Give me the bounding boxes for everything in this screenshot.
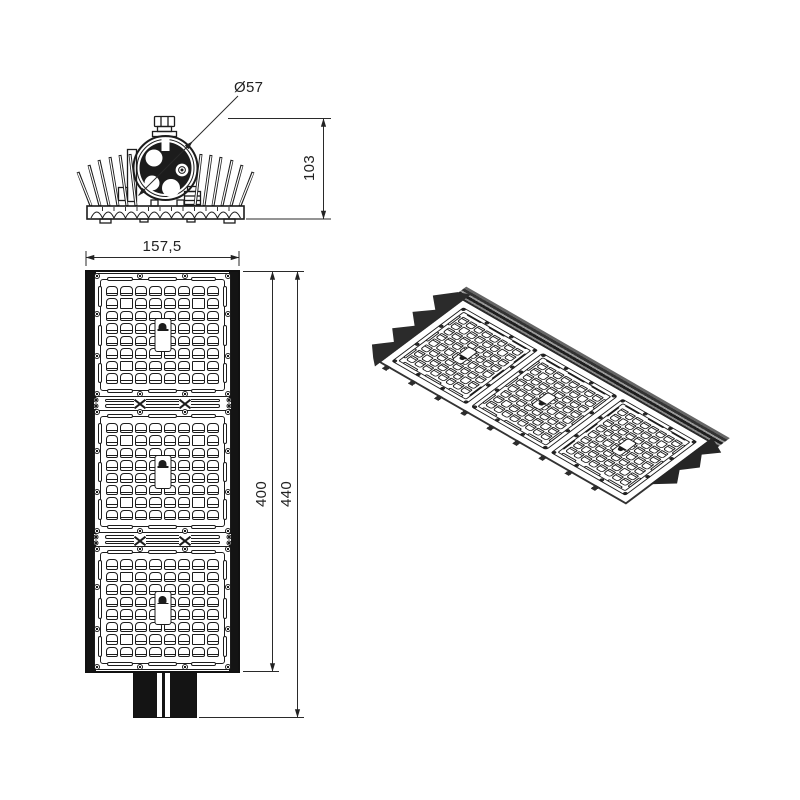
frame-slot	[107, 414, 133, 418]
screw-head-icon	[519, 432, 526, 436]
led-lens-cell	[207, 298, 219, 308]
led-lens-cell	[149, 298, 161, 308]
led-lens-cell	[164, 361, 176, 371]
strip-slot	[105, 535, 220, 538]
led-lens-cell	[178, 572, 190, 582]
led-lens-cell	[106, 622, 118, 632]
led-lens-cell	[135, 584, 147, 594]
screw-head-icon	[137, 528, 143, 534]
frame-slot	[223, 560, 227, 581]
mount-pad-cell	[120, 361, 132, 371]
led-lens-cell	[178, 348, 190, 358]
screw-head-icon	[137, 664, 143, 670]
dim-body-length: 400	[253, 472, 269, 516]
screw-head-icon	[440, 386, 447, 390]
module-connector-strip	[94, 398, 231, 409]
led-lens-cell	[164, 634, 176, 644]
module-connector-strip	[94, 534, 231, 545]
led-lens-cell	[135, 497, 147, 507]
hot-surface-warning-icon	[159, 323, 167, 330]
led-lens-cell	[207, 634, 219, 644]
screw-head-icon	[542, 445, 549, 449]
screw-head-icon	[94, 664, 100, 670]
mount-pad-cell	[120, 435, 132, 445]
strip-slot	[105, 399, 220, 402]
led-lens-cell	[149, 435, 161, 445]
led-lens-cell	[149, 361, 161, 371]
led-lens-cell	[178, 311, 190, 321]
led-lens-cell	[135, 559, 147, 569]
led-module	[94, 410, 231, 534]
frame-slot	[98, 560, 102, 581]
module-center-label	[154, 455, 171, 489]
led-lens-cell	[207, 485, 219, 495]
module-center-label	[154, 591, 171, 625]
led-lens-cell	[207, 373, 219, 383]
screw-head-icon	[182, 528, 188, 534]
hot-surface-warning-icon	[159, 596, 167, 603]
led-lens-cell	[106, 435, 118, 445]
mount-pad-cell	[192, 435, 204, 445]
mount-pad-cell	[192, 298, 204, 308]
frame-slot	[107, 662, 133, 666]
led-lens-cell	[207, 448, 219, 458]
led-lens-cell	[135, 435, 147, 445]
led-lens-cell	[164, 497, 176, 507]
led-lens-cell	[120, 609, 132, 619]
frame-slot	[107, 389, 133, 393]
frame-slot	[148, 414, 178, 418]
led-lens-cell	[135, 597, 147, 607]
led-lens-cell	[164, 510, 176, 520]
frame-slot	[191, 414, 217, 418]
frame-slot	[223, 462, 227, 483]
led-lens-cell	[207, 647, 219, 657]
cross-tie-icon	[179, 398, 191, 409]
led-lens-cell	[207, 336, 219, 346]
clamp-hinge-bracket	[128, 150, 137, 202]
frame-slot	[148, 662, 178, 666]
led-lens-cell	[192, 311, 204, 321]
led-lens-cell	[178, 622, 190, 632]
screw-head-icon	[494, 418, 501, 422]
frame-slot	[98, 636, 102, 657]
dim-clamp-diameter: Ø57	[234, 79, 263, 96]
led-lens-cell	[192, 373, 204, 383]
screw-head-icon	[94, 409, 100, 415]
hot-surface-warning-icon	[617, 447, 625, 452]
led-lens-cell	[106, 298, 118, 308]
screw-head-icon	[690, 440, 697, 444]
screw-head-icon	[226, 398, 231, 403]
frame-slot	[148, 550, 178, 554]
hot-surface-warning-icon	[537, 401, 545, 406]
screw-head-icon	[94, 448, 100, 454]
led-lens-cell	[106, 572, 118, 582]
led-lens-cell	[192, 460, 204, 470]
led-lens-cell	[178, 634, 190, 644]
led-lens-cell	[192, 485, 204, 495]
screw-head-icon	[551, 450, 558, 454]
led-lens-cell	[178, 609, 190, 619]
led-lens-cell	[135, 448, 147, 458]
led-lens-cell	[135, 373, 147, 383]
led-lens-cell	[106, 473, 118, 483]
frame-slot	[223, 636, 227, 657]
led-lens-cell	[192, 559, 204, 569]
led-lens-cell	[135, 572, 147, 582]
heatsink-fins	[78, 154, 253, 206]
frame-slot	[223, 423, 227, 444]
led-lens-cell	[149, 634, 161, 644]
screw-head-icon	[225, 664, 231, 670]
led-lens-cell	[106, 647, 118, 657]
frame-slot	[191, 662, 217, 666]
frame-slot	[223, 286, 227, 307]
screw-head-icon	[94, 403, 99, 408]
module-center-label	[154, 318, 171, 352]
led-lens-cell	[106, 609, 118, 619]
frame-slot	[223, 325, 227, 346]
led-lens-cell	[120, 311, 132, 321]
screw-head-icon	[182, 391, 188, 397]
screw-head-icon	[182, 409, 188, 415]
led-lens-cell	[164, 423, 176, 433]
led-lens-cell	[207, 584, 219, 594]
led-lens-cell	[164, 373, 176, 383]
cross-tie-icon	[179, 534, 191, 545]
mount-pad-cell	[120, 497, 132, 507]
screw-head-icon	[622, 491, 629, 495]
led-lens-cell	[192, 597, 204, 607]
led-lens-cell	[178, 510, 190, 520]
led-module	[94, 273, 231, 397]
led-lens-cell	[178, 286, 190, 296]
frame-slot	[98, 423, 102, 444]
led-lens-cell	[149, 373, 161, 383]
pole-clamp-ring	[134, 136, 198, 200]
screw-head-icon	[225, 391, 231, 397]
led-lens-cell	[120, 597, 132, 607]
led-lens-cell	[207, 348, 219, 358]
led-lens-cell	[149, 559, 161, 569]
frame-slot	[107, 525, 133, 529]
led-lens-cell	[106, 634, 118, 644]
screw-head-icon	[94, 391, 100, 397]
led-lens-cell	[120, 373, 132, 383]
led-lens-cell	[192, 473, 204, 483]
led-lens-cell	[106, 361, 118, 371]
screw-head-icon	[225, 311, 231, 317]
led-lens-cell	[178, 361, 190, 371]
led-lens-cell	[178, 435, 190, 445]
heatsink-base	[87, 200, 244, 223]
led-lens-cell	[135, 473, 147, 483]
screw-head-icon	[94, 353, 100, 359]
frame-slot	[223, 363, 227, 384]
clamp-screw-icon	[175, 163, 189, 177]
plan-led-panel	[94, 272, 231, 671]
led-lens-cell	[207, 609, 219, 619]
led-lens-cell	[178, 473, 190, 483]
led-lens-cell	[164, 286, 176, 296]
led-lens-cell	[207, 572, 219, 582]
strip-slot	[105, 541, 220, 544]
screw-head-icon	[94, 626, 100, 632]
led-lens-cell	[120, 510, 132, 520]
frame-slot	[98, 325, 102, 346]
led-lens-cell	[178, 497, 190, 507]
led-lens-cell	[135, 485, 147, 495]
led-lens-cell	[106, 559, 118, 569]
top-bolt	[153, 117, 177, 137]
led-lens-cell	[207, 559, 219, 569]
led-lens-cell	[106, 497, 118, 507]
screw-head-icon	[225, 448, 231, 454]
mount-pad-cell	[192, 634, 204, 644]
led-lens-cell	[135, 622, 147, 632]
diameter-line	[139, 142, 193, 196]
screw-head-icon	[644, 474, 651, 478]
screw-head-icon	[463, 400, 470, 404]
led-lens-cell	[178, 485, 190, 495]
led-lens-cell	[192, 336, 204, 346]
led-lens-cell	[120, 622, 132, 632]
frame-slot	[191, 550, 217, 554]
screw-head-icon	[485, 383, 492, 387]
screw-head-icon	[225, 528, 231, 534]
screw-head-icon	[540, 353, 547, 357]
screw-head-icon	[94, 489, 100, 495]
screw-head-icon	[94, 398, 99, 403]
frame-slot	[98, 462, 102, 483]
led-lens-cell	[178, 584, 190, 594]
frame-slot	[107, 277, 133, 281]
screw-head-icon	[225, 273, 231, 279]
led-lens-cell	[192, 622, 204, 632]
screw-head-icon	[460, 308, 467, 312]
led-lens-cell	[207, 286, 219, 296]
screw-head-icon	[137, 273, 143, 279]
led-lens-cell	[135, 311, 147, 321]
led-lens-cell	[135, 647, 147, 657]
heatsink-fins-highlight	[78, 155, 253, 205]
led-lens-cell	[192, 286, 204, 296]
led-lens-cell	[106, 336, 118, 346]
led-lens-cell	[207, 323, 219, 333]
led-lens-cell	[135, 423, 147, 433]
led-lens-cell	[178, 323, 190, 333]
screw-head-icon	[182, 546, 188, 552]
led-lens-cell	[192, 647, 204, 657]
led-lens-cell	[135, 634, 147, 644]
led-lens-cell	[135, 609, 147, 619]
strip-slot	[105, 404, 220, 407]
led-lens-cell	[178, 460, 190, 470]
led-lens-cell	[178, 298, 190, 308]
screw-head-icon	[471, 404, 478, 408]
screw-head-icon	[182, 664, 188, 670]
screw-head-icon	[137, 409, 143, 415]
mount-pad-cell	[120, 298, 132, 308]
mount-pad-cell	[192, 572, 204, 582]
led-lens-cell	[120, 348, 132, 358]
frame-slot	[223, 598, 227, 619]
led-lens-cell	[120, 559, 132, 569]
led-lens-cell	[192, 423, 204, 433]
led-lens-cell	[106, 584, 118, 594]
led-lens-cell	[135, 348, 147, 358]
screw-head-icon	[565, 429, 572, 433]
screw-head-icon	[137, 391, 143, 397]
screw-head-icon	[94, 273, 100, 279]
screw-head-icon	[619, 399, 626, 403]
led-lens-cell	[120, 584, 132, 594]
led-lens-cell	[135, 361, 147, 371]
frame-slot	[98, 286, 102, 307]
screw-head-icon	[599, 478, 606, 482]
frame-slot	[191, 525, 217, 529]
led-lens-cell	[192, 448, 204, 458]
led-lens-cell	[207, 435, 219, 445]
screw-head-icon	[182, 273, 188, 279]
led-lens-cell	[106, 311, 118, 321]
screw-head-icon	[94, 546, 100, 552]
led-lens-cell	[164, 435, 176, 445]
led-lens-cell	[135, 336, 147, 346]
screw-head-icon	[574, 463, 581, 467]
led-lens-cell	[178, 647, 190, 657]
led-lens-cell	[149, 647, 161, 657]
mount-pad-cell	[120, 572, 132, 582]
screw-head-icon	[225, 489, 231, 495]
screw-head-icon	[94, 535, 99, 540]
led-lens-cell	[178, 373, 190, 383]
led-lens-cell	[178, 597, 190, 607]
led-lens-cell	[135, 510, 147, 520]
led-lens-cell	[120, 647, 132, 657]
led-lens-cell	[120, 423, 132, 433]
isometric-view-panel	[378, 298, 711, 504]
screw-head-icon	[225, 353, 231, 359]
screw-head-icon	[589, 411, 596, 415]
frame-slot	[98, 598, 102, 619]
led-lens-cell	[106, 485, 118, 495]
led-lens-cell	[120, 336, 132, 346]
led-lens-cell	[207, 497, 219, 507]
led-lens-cell	[207, 597, 219, 607]
screw-head-icon	[137, 546, 143, 552]
screw-head-icon	[415, 372, 422, 376]
screw-head-icon	[226, 535, 231, 540]
screw-head-icon	[509, 365, 516, 369]
led-lens-cell	[106, 373, 118, 383]
screw-head-icon	[225, 626, 231, 632]
frame-slot	[148, 525, 178, 529]
cable-gland	[185, 187, 201, 206]
led-lens-cell	[207, 473, 219, 483]
frame-slot	[98, 499, 102, 520]
led-lens-cell	[178, 448, 190, 458]
led-lens-cell	[106, 597, 118, 607]
screw-head-icon	[225, 584, 231, 590]
led-lens-cell	[192, 584, 204, 594]
led-lens-cell	[106, 286, 118, 296]
led-lens-cell	[207, 622, 219, 632]
frame-slot	[223, 499, 227, 520]
led-lens-cell	[149, 423, 161, 433]
frame-slot	[191, 389, 217, 393]
screw-head-icon	[226, 540, 231, 545]
diameter-leader	[193, 96, 239, 142]
screw-head-icon	[226, 403, 231, 408]
dim-front-height: 103	[301, 146, 317, 190]
clamp-hinge-foot	[119, 188, 128, 201]
dim-overall-length: 440	[278, 472, 294, 516]
led-lens-cell	[106, 323, 118, 333]
led-lens-cell	[120, 323, 132, 333]
led-lens-cell	[164, 647, 176, 657]
screw-head-icon	[94, 584, 100, 590]
screw-head-icon	[531, 348, 538, 352]
pole-mount-bracket	[133, 672, 197, 718]
led-lens-cell	[106, 460, 118, 470]
led-lens-cell	[135, 298, 147, 308]
screw-head-icon	[94, 528, 100, 534]
led-lens-cell	[207, 510, 219, 520]
screw-head-icon	[611, 394, 618, 398]
led-lens-cell	[164, 298, 176, 308]
hot-surface-warning-icon	[159, 460, 167, 467]
frame-slot	[148, 277, 178, 281]
led-lens-cell	[178, 559, 190, 569]
frame-slot	[148, 389, 178, 393]
led-lens-cell	[106, 348, 118, 358]
screw-head-icon	[225, 546, 231, 552]
led-lens-cell	[207, 423, 219, 433]
led-lens-cell	[106, 510, 118, 520]
led-lens-cell	[178, 423, 190, 433]
led-lens-cell	[135, 460, 147, 470]
front-view-drawing	[78, 117, 253, 224]
led-lens-cell	[192, 323, 204, 333]
frame-slot	[107, 550, 133, 554]
led-lens-cell	[135, 323, 147, 333]
screw-head-icon	[94, 540, 99, 545]
led-lens-cell	[207, 361, 219, 371]
led-lens-cell	[120, 286, 132, 296]
cross-tie-icon	[134, 398, 146, 409]
frame-slot	[98, 363, 102, 384]
led-lens-cell	[192, 609, 204, 619]
dim-plan-width: 157,5	[122, 238, 202, 255]
cross-tie-icon	[134, 534, 146, 545]
led-lens-cell	[164, 572, 176, 582]
led-lens-cell	[135, 286, 147, 296]
led-lens-cell	[106, 448, 118, 458]
led-lens-cell	[207, 311, 219, 321]
technical-drawing-sheet: Ø57 103 157,5 400 440	[0, 0, 800, 800]
led-lens-cell	[207, 460, 219, 470]
led-lens-cell	[149, 510, 161, 520]
mount-pad-cell	[192, 361, 204, 371]
led-lens-cell	[120, 448, 132, 458]
led-lens-cell	[178, 336, 190, 346]
led-lens-cell	[192, 510, 204, 520]
mount-pad-cell	[120, 634, 132, 644]
led-lens-cell	[120, 460, 132, 470]
screw-head-icon	[668, 456, 675, 460]
